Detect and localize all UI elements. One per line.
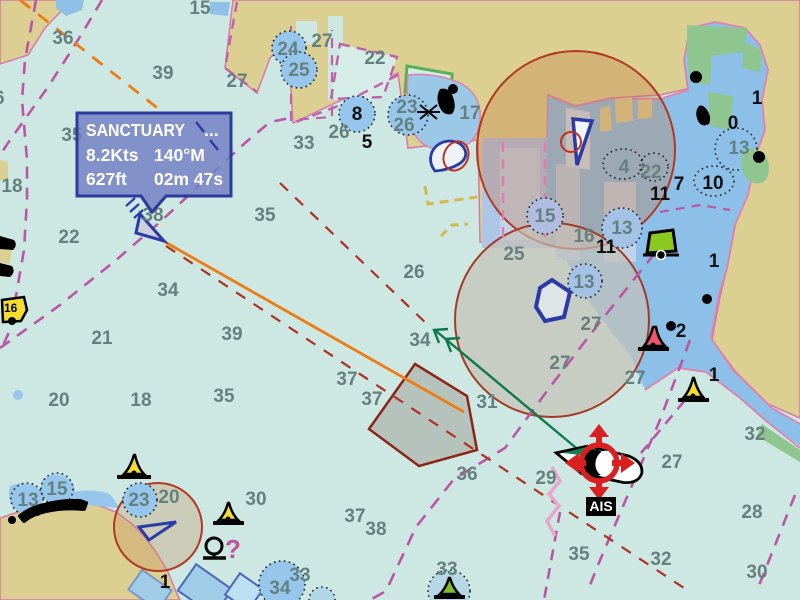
svg-text:11: 11 — [650, 184, 671, 205]
svg-text:27: 27 — [549, 353, 570, 374]
svg-text:33: 33 — [436, 559, 457, 580]
svg-text:140°M: 140°M — [154, 145, 205, 165]
svg-text:20: 20 — [158, 487, 179, 508]
svg-text:AIS: AIS — [589, 498, 612, 514]
svg-text:15: 15 — [534, 206, 556, 227]
svg-text:627ft: 627ft — [86, 169, 127, 189]
svg-text:13: 13 — [17, 490, 38, 511]
svg-text:27: 27 — [661, 452, 682, 473]
svg-text:37: 37 — [344, 506, 365, 527]
svg-text:17: 17 — [459, 103, 480, 124]
svg-text:2: 2 — [676, 321, 687, 342]
svg-text:4: 4 — [619, 157, 630, 178]
svg-text:13: 13 — [611, 218, 632, 239]
svg-text:37: 37 — [361, 389, 382, 410]
svg-text:15: 15 — [46, 479, 68, 500]
svg-text:18: 18 — [130, 390, 151, 411]
svg-text:11: 11 — [596, 237, 617, 258]
svg-text:32: 32 — [650, 549, 671, 570]
svg-text:36: 36 — [456, 464, 477, 485]
svg-text:22: 22 — [364, 48, 385, 69]
svg-text:22: 22 — [640, 162, 661, 183]
svg-text:18: 18 — [1, 176, 22, 197]
svg-text:26: 26 — [328, 122, 349, 143]
svg-text:8.2Kts: 8.2Kts — [86, 145, 139, 165]
svg-text:34: 34 — [409, 330, 431, 351]
svg-text:10: 10 — [702, 173, 723, 194]
svg-text:1: 1 — [752, 88, 763, 109]
svg-text:22: 22 — [58, 227, 79, 248]
svg-text:28: 28 — [741, 502, 762, 523]
svg-text:31: 31 — [476, 392, 498, 413]
svg-text:27: 27 — [580, 314, 601, 335]
svg-text:15: 15 — [189, 0, 211, 19]
svg-text:SANCTUARY: SANCTUARY — [86, 120, 185, 140]
svg-text:23: 23 — [128, 490, 149, 511]
svg-text:02m 47s: 02m 47s — [154, 169, 223, 189]
svg-text:29: 29 — [535, 468, 556, 489]
svg-text:36: 36 — [0, 88, 5, 109]
svg-text:13: 13 — [728, 138, 749, 159]
svg-text:26: 26 — [393, 115, 414, 136]
svg-text:24: 24 — [277, 39, 299, 60]
svg-text:34: 34 — [269, 578, 291, 599]
svg-text:...: ... — [204, 120, 219, 140]
svg-text:27: 27 — [226, 71, 247, 92]
svg-text:7: 7 — [674, 174, 685, 195]
svg-text:5: 5 — [362, 132, 373, 153]
svg-text:0: 0 — [728, 113, 739, 134]
svg-text:32: 32 — [744, 424, 765, 445]
svg-text:30: 30 — [245, 489, 266, 510]
svg-text:20: 20 — [48, 390, 69, 411]
svg-text:25: 25 — [288, 60, 310, 81]
svg-text:21: 21 — [91, 328, 113, 349]
svg-text:33: 33 — [289, 565, 310, 586]
svg-text:?: ? — [225, 534, 241, 564]
svg-text:37: 37 — [336, 369, 357, 390]
svg-text:35: 35 — [568, 544, 590, 565]
svg-text:1: 1 — [160, 572, 171, 593]
svg-text:38: 38 — [365, 519, 386, 540]
svg-text:39: 39 — [152, 63, 173, 84]
svg-text:35: 35 — [213, 386, 235, 407]
svg-text:16: 16 — [573, 226, 594, 247]
svg-text:1: 1 — [709, 365, 720, 386]
svg-text:25: 25 — [503, 244, 525, 265]
svg-text:27: 27 — [311, 31, 332, 52]
svg-text:13: 13 — [573, 272, 594, 293]
svg-text:26: 26 — [403, 262, 424, 283]
svg-text:34: 34 — [157, 280, 179, 301]
svg-text:35: 35 — [254, 205, 276, 226]
svg-text:8: 8 — [352, 104, 363, 125]
svg-text:33: 33 — [293, 133, 314, 154]
svg-text:16: 16 — [4, 301, 18, 315]
svg-text:1: 1 — [709, 251, 720, 272]
svg-text:39: 39 — [221, 324, 242, 345]
svg-text:27: 27 — [624, 368, 645, 389]
svg-text:30: 30 — [746, 562, 767, 583]
svg-text:36: 36 — [52, 28, 73, 49]
